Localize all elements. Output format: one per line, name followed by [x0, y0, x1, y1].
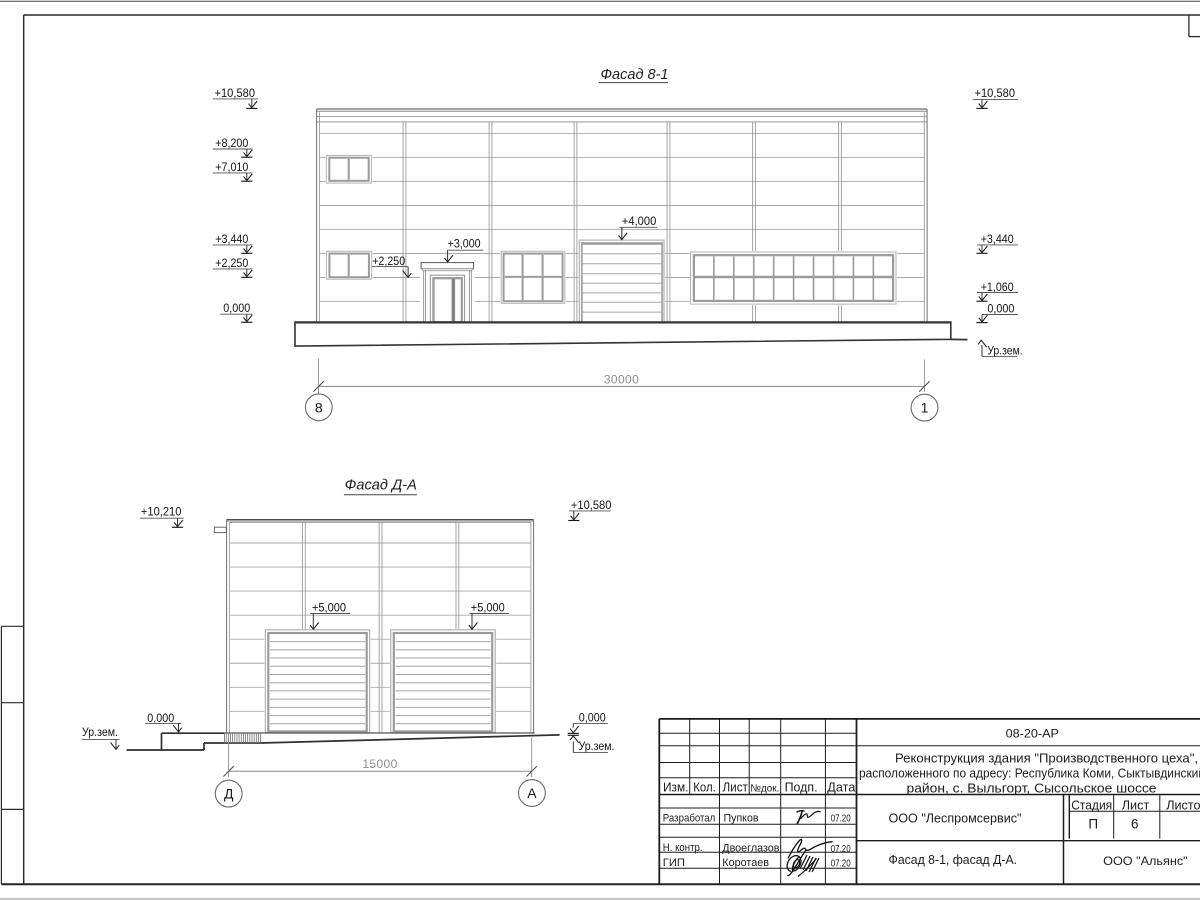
svg-text:Изм.: Изм.	[663, 780, 689, 795]
svg-text:Фасад 8-1: Фасад 8-1	[601, 66, 669, 83]
svg-text:0,000: 0,000	[987, 303, 1014, 316]
svg-text:15000: 15000	[362, 757, 397, 771]
svg-text:+10,580: +10,580	[215, 87, 256, 100]
svg-text:район, с. Выльгорт, Сысольское: район, с. Выльгорт, Сысольское шоссе	[907, 781, 1157, 795]
svg-text:8: 8	[315, 399, 323, 415]
svg-text:Пупков: Пупков	[724, 813, 759, 825]
svg-text:Подп.: Подп.	[785, 780, 818, 795]
svg-text:Коротаев: Коротаев	[722, 857, 769, 869]
svg-text:Кол.: Кол.	[693, 780, 716, 795]
svg-text:Реконструкция здания "Производ: Реконструкция здания "Производственного …	[895, 752, 1198, 766]
svg-text:Лист: Лист	[1122, 798, 1150, 813]
svg-text:07.20: 07.20	[831, 843, 851, 855]
svg-text:Д: Д	[224, 786, 234, 802]
svg-text:Стадия: Стадия	[1071, 798, 1112, 813]
svg-text:расположенного по адресу: Респ: расположенного по адресу: Республика Ком…	[859, 767, 1200, 781]
svg-text:+3,440: +3,440	[215, 233, 248, 246]
svg-text:07.20: 07.20	[831, 858, 851, 870]
svg-text:07.20: 07.20	[831, 812, 851, 824]
svg-text:+2,250: +2,250	[372, 255, 405, 268]
svg-text:+4,000: +4,000	[622, 215, 657, 228]
svg-text:Фасад 8-1, фасад Д-А.: Фасад 8-1, фасад Д-А.	[889, 852, 1018, 867]
svg-text:Фасад Д-А: Фасад Д-А	[345, 477, 417, 494]
svg-text:Разработал: Разработал	[663, 813, 716, 825]
svg-text:Двоеглазов: Двоеглазов	[722, 842, 779, 854]
svg-text:30000: 30000	[604, 372, 639, 386]
svg-text:П: П	[1088, 817, 1098, 832]
svg-text:Ур.зем.: Ур.зем.	[579, 740, 615, 753]
svg-text:1: 1	[921, 400, 929, 416]
svg-text:+2,250: +2,250	[215, 257, 248, 270]
svg-text:+1,060: +1,060	[981, 281, 1014, 294]
svg-text:0,000: 0,000	[223, 302, 250, 315]
svg-text:0,000: 0,000	[579, 711, 606, 724]
svg-text:+10,210: +10,210	[141, 505, 182, 518]
svg-text:6: 6	[1131, 817, 1139, 832]
svg-text:№док.: №док.	[750, 782, 779, 794]
svg-text:Н. контр.: Н. контр.	[663, 842, 703, 854]
svg-text:+5,000: +5,000	[471, 601, 505, 614]
svg-text:ООО "Альянс": ООО "Альянс"	[1103, 854, 1188, 868]
svg-text:08-20-АР: 08-20-АР	[1006, 726, 1059, 740]
svg-text:Дата: Дата	[827, 780, 856, 795]
svg-text:Ур.зем.: Ур.зем.	[987, 344, 1023, 357]
svg-text:Листов: Листов	[1166, 798, 1200, 813]
svg-text:+3,000: +3,000	[448, 238, 481, 251]
svg-text:+10,580: +10,580	[571, 499, 612, 512]
svg-text:+7,010: +7,010	[215, 161, 248, 174]
svg-text:+5,000: +5,000	[312, 601, 346, 614]
svg-text:А: А	[527, 785, 537, 801]
svg-text:+3,440: +3,440	[981, 233, 1014, 246]
svg-text:ООО "Леспромсервис": ООО "Леспромсервис"	[889, 810, 1022, 825]
svg-text:Лист: Лист	[722, 780, 748, 795]
svg-text:ГИП: ГИП	[663, 857, 685, 869]
svg-text:+10,580: +10,580	[975, 87, 1016, 100]
svg-text:+8,200: +8,200	[215, 137, 248, 150]
svg-text:Ур.зем.: Ур.зем.	[82, 726, 118, 739]
